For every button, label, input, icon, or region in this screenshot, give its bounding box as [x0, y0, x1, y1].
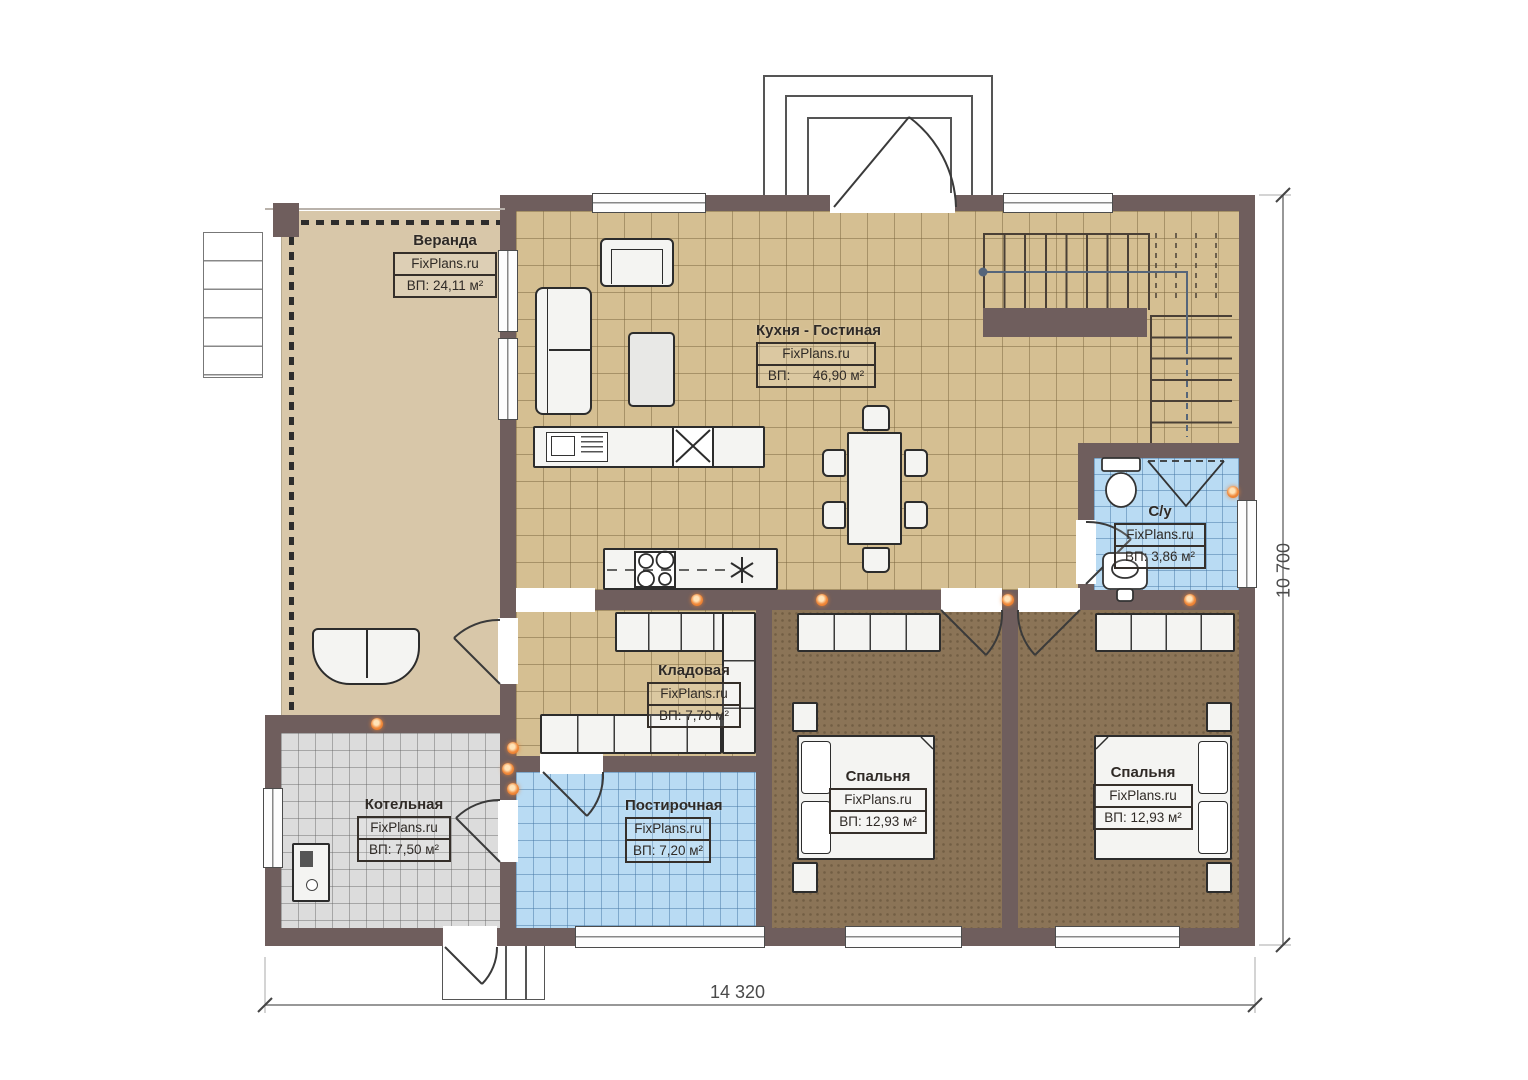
wall-light: [371, 718, 383, 730]
room-info-box: FixPlans.ru ВП: 24,11 м²: [393, 252, 497, 298]
opening-kitchen-hall: [516, 588, 595, 612]
window-kitchen-north: [592, 193, 706, 213]
room-label-storage: Кладовая FixPlans.ru ВП: 7,70 м²: [647, 662, 741, 728]
armchair-seat: [611, 249, 663, 284]
window-bedroom2-south: [1055, 926, 1180, 948]
chair: [822, 449, 846, 477]
room-label-bedroom2: Спальня FixPlans.ru ВП: 12,93 м²: [1093, 764, 1193, 830]
sofa-cushion-line: [549, 349, 590, 351]
boiler-panel: [300, 851, 313, 867]
room-area: ВП: 3,86 м²: [1116, 547, 1204, 567]
nightstand: [792, 862, 818, 893]
room-label-bathroom: С/у FixPlans.ru ВП: 3,86 м²: [1114, 503, 1206, 569]
window-stairs-north: [1003, 193, 1113, 213]
dimension-height-label: 10 700: [1274, 539, 1295, 603]
room-area: ВП: 7,70 м²: [649, 706, 739, 726]
nightstand: [1206, 702, 1232, 732]
room-label-kitchen-living: Кухня - Гостиная FixPlans.ru ВП: 46,90 м…: [756, 322, 876, 388]
room-info-box: FixPlans.ru ВП: 7,20 м²: [625, 817, 711, 863]
room-info-box: FixPlans.ru ВП: 7,70 м²: [647, 682, 741, 728]
room-info-box: FixPlans.ru ВП: 12,93 м²: [829, 788, 927, 834]
window-bathroom-east: [1237, 500, 1257, 588]
wall-light: [816, 594, 828, 606]
window-laundry-south: [575, 926, 765, 948]
bench-divider: [366, 630, 368, 678]
brand-watermark: FixPlans.ru: [1095, 786, 1191, 808]
room-info-box: FixPlans.ru ВП: 46,90 м²: [756, 342, 876, 388]
coffee-table: [628, 332, 675, 407]
hob-unit: [672, 426, 714, 468]
room-name: Спальня: [829, 768, 927, 785]
wall-light: [1184, 594, 1196, 606]
stairs-lower-flight: [1150, 315, 1232, 443]
sink-basin: [551, 436, 575, 456]
opening-boiler-entrance: [443, 926, 497, 948]
opening-hall-laundry-door: [540, 754, 603, 774]
brand-watermark: FixPlans.ru: [627, 819, 709, 841]
brand-watermark: FixPlans.ru: [1116, 525, 1204, 547]
wall-light: [1227, 486, 1239, 498]
wardrobe-bedroom2: [1095, 613, 1235, 652]
room-name: С/у: [1114, 503, 1206, 520]
room-info-box: FixPlans.ru ВП: 3,86 м²: [1114, 523, 1206, 569]
window-veranda-kitchen-a: [498, 250, 518, 332]
boiler-unit: [292, 843, 330, 902]
wall-storage-bedroom: [756, 590, 772, 928]
veranda-railing-west: [289, 237, 294, 715]
room-name: Кухня - Гостиная: [756, 322, 876, 339]
brand-watermark: FixPlans.ru: [831, 790, 925, 812]
room-area: ВП: 46,90 м²: [758, 366, 874, 386]
opening-veranda-door: [498, 618, 518, 684]
wall-light: [1002, 594, 1014, 606]
dimension-width-label: 14 320: [710, 982, 765, 1003]
room-label-veranda: Веранда FixPlans.ru ВП: 24,11 м²: [393, 232, 497, 298]
kitchen-counter-lower: [603, 548, 778, 590]
room-area: ВП: 12,93 м²: [1095, 808, 1191, 828]
wardrobe-bedroom1: [797, 613, 941, 652]
brand-watermark: FixPlans.ru: [359, 818, 449, 840]
brand-watermark: FixPlans.ru: [395, 254, 495, 276]
opening-boiler-laundry-door: [498, 800, 518, 862]
window-boiler-west: [263, 788, 283, 868]
step-divider: [505, 946, 507, 999]
wall-bedroom-divider: [1002, 610, 1018, 928]
veranda-railing-north: [301, 220, 500, 225]
stove: [634, 551, 676, 588]
chair: [904, 501, 928, 529]
veranda-bench: [312, 628, 420, 685]
window-bedroom1-south: [845, 926, 962, 948]
room-name: Кладовая: [647, 662, 741, 679]
room-label-laundry: Постирочная FixPlans.ru ВП: 7,20 м²: [625, 797, 711, 863]
opening-entrance-door: [830, 193, 955, 213]
veranda-roof-line: [265, 208, 505, 210]
brand-watermark: FixPlans.ru: [649, 684, 739, 706]
room-area: ВП: 24,11 м²: [395, 276, 495, 296]
pillow: [801, 801, 831, 854]
veranda-deck-steps: [203, 232, 263, 378]
room-area: ВП: 12,93 м²: [831, 812, 925, 832]
nightstand: [1206, 862, 1232, 893]
window-veranda-kitchen-b: [498, 338, 518, 420]
room-name: Веранда: [393, 232, 497, 249]
wall-light: [691, 594, 703, 606]
dining-table: [847, 432, 902, 545]
nightstand: [792, 702, 818, 732]
step-divider: [525, 946, 527, 999]
opening-bedroom2-door: [1018, 588, 1080, 612]
brand-watermark: FixPlans.ru: [758, 344, 874, 366]
stairs-landing-wall: [983, 308, 1147, 337]
kitchen-sink-unit: [546, 432, 608, 462]
wall-veranda-boiler: [265, 715, 516, 733]
chair: [862, 405, 890, 431]
chair: [904, 449, 928, 477]
room-name: Спальня: [1093, 764, 1193, 781]
floor-plan: Веранда FixPlans.ru ВП: 24,11 м² Кухня -…: [0, 0, 1528, 1080]
opening-bathroom-door: [1076, 520, 1096, 584]
sofa: [535, 287, 592, 415]
opening-bedroom1-door: [941, 588, 1002, 612]
wall-light: [507, 783, 519, 795]
wall-bathroom-south: [1080, 590, 1239, 610]
sofa-backrest: [537, 289, 548, 413]
room-area: ВП: 7,50 м²: [359, 840, 449, 860]
veranda-corner-post: [273, 203, 299, 237]
chair: [822, 501, 846, 529]
chair: [862, 547, 890, 573]
room-label-boiler: Котельная FixPlans.ru ВП: 7,50 м²: [357, 796, 451, 862]
room-info-box: FixPlans.ru ВП: 7,50 м²: [357, 816, 451, 862]
armchair: [600, 238, 674, 287]
wall-bathroom-north: [1078, 443, 1239, 458]
room-label-bedroom1: Спальня FixPlans.ru ВП: 12,93 м²: [829, 768, 927, 834]
boiler-dial: [306, 879, 318, 891]
sink-drainer-lines: [581, 436, 603, 456]
boiler-entrance-steps: [442, 946, 545, 1000]
pillow: [801, 741, 831, 794]
wall-light: [502, 763, 514, 775]
room-name: Постирочная: [625, 797, 711, 814]
stairs-upper-flight: [983, 233, 1150, 310]
wall-light: [507, 742, 519, 754]
room-info-box: FixPlans.ru ВП: 12,93 м²: [1093, 784, 1193, 830]
porch-outline-inner: [807, 117, 952, 195]
pillow: [1198, 801, 1228, 854]
room-area: ВП: 7,20 м²: [627, 841, 709, 861]
pillow: [1198, 741, 1228, 794]
room-name: Котельная: [357, 796, 451, 813]
